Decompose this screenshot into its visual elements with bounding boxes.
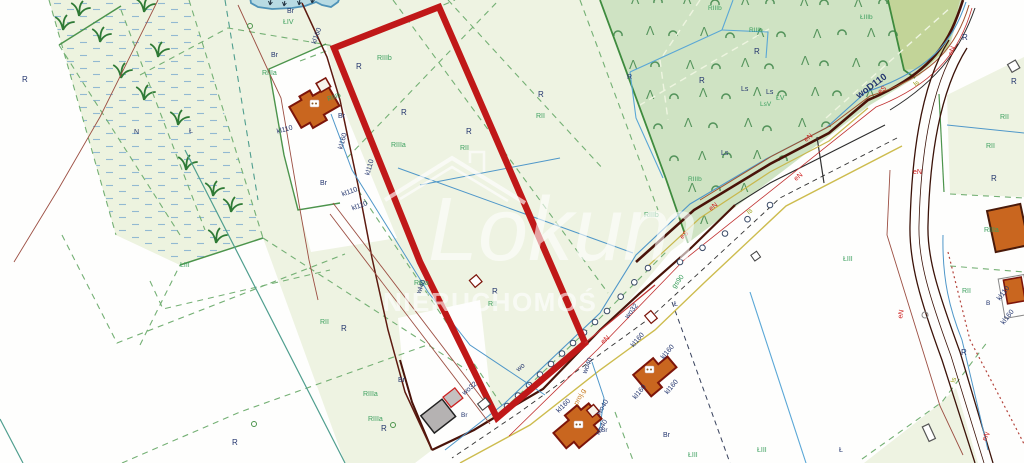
svg-text:R: R [22, 75, 28, 84]
svg-text:ŁIIIb: ŁIIIb [860, 14, 873, 21]
svg-text:NIERUCHOMOŚ: NIERUCHOMOŚ [383, 287, 597, 317]
svg-text:Λ: Λ [811, 85, 820, 99]
svg-text:R: R [356, 62, 362, 71]
svg-text:RIIIa: RIIIa [363, 391, 378, 398]
svg-text:Λ: Λ [813, 27, 822, 41]
svg-text:ŁIII: ŁIII [843, 256, 853, 263]
svg-text:RIIIa: RIIIa [368, 416, 383, 423]
svg-text:Λ: Λ [744, 116, 753, 130]
svg-text:B: B [986, 300, 990, 307]
svg-text:R: R [962, 33, 968, 42]
svg-text:Λ: Λ [753, 85, 762, 99]
svg-text:N: N [134, 129, 139, 136]
svg-text:Br: Br [338, 113, 346, 120]
svg-text:RIIIa: RIIIa [262, 70, 277, 77]
svg-text:R: R [961, 348, 967, 357]
svg-text:Λ: Λ [698, 149, 707, 163]
svg-text:RII: RII [320, 319, 329, 326]
svg-text:RII: RII [986, 143, 995, 150]
svg-text:R: R [991, 174, 997, 183]
svg-text:Ł: Ł [839, 447, 843, 454]
svg-text:Λ: Λ [646, 24, 655, 38]
svg-text:R: R [381, 424, 387, 433]
svg-text:ŁIII: ŁIII [688, 452, 698, 459]
svg-text:Λ: Λ [854, 0, 863, 10]
svg-text:Λ: Λ [801, 54, 810, 68]
svg-text:RIIIb: RIIIb [377, 55, 392, 62]
svg-text:R: R [401, 108, 407, 117]
svg-text:R: R [627, 74, 632, 81]
svg-text:R: R [699, 76, 705, 85]
svg-text:RIIIb: RIIIb [749, 27, 763, 34]
svg-text:LsV: LsV [760, 101, 772, 108]
svg-text:Λ: Λ [753, 148, 762, 162]
svg-text:Λ: Λ [741, 56, 750, 70]
svg-text:eN: eN [913, 169, 922, 176]
svg-text:Ls: Ls [766, 89, 774, 96]
svg-text:Br: Br [271, 52, 279, 59]
svg-text:Λ: Λ [646, 88, 655, 102]
svg-text:R: R [538, 90, 544, 99]
svg-text:RII: RII [460, 145, 469, 152]
svg-text:Λ: Λ [631, 0, 640, 7]
svg-text:Ls: Ls [741, 86, 749, 93]
svg-text:ŁIII: ŁIII [180, 262, 190, 269]
svg-text:R: R [232, 438, 238, 447]
svg-text:RIIIb: RIIIb [708, 5, 722, 12]
svg-text:Br: Br [398, 377, 406, 384]
svg-text:Br: Br [287, 8, 295, 15]
svg-text:Ł: Ł [189, 128, 193, 135]
svg-text:RII: RII [962, 288, 971, 295]
svg-text:Br: Br [461, 412, 468, 419]
svg-text:R: R [341, 324, 347, 333]
svg-text:Λ: Λ [683, 0, 692, 7]
svg-text:Lokum: Lokum [428, 180, 698, 280]
svg-text:ŁV: ŁV [776, 95, 785, 102]
svg-text:Λ: Λ [684, 116, 693, 130]
svg-text:R: R [466, 127, 472, 136]
svg-text:Λ: Λ [686, 58, 695, 72]
svg-text:ŁIV: ŁIV [283, 19, 294, 26]
svg-text:Ls: Ls [721, 150, 729, 157]
svg-text:RII: RII [1000, 114, 1009, 121]
svg-text:Λ: Λ [699, 86, 708, 100]
svg-text:RII: RII [536, 113, 545, 120]
svg-text:Λ: Λ [741, 0, 750, 8]
svg-text:Λ: Λ [867, 26, 876, 40]
svg-text:RIIIa: RIIIa [984, 227, 999, 234]
svg-text:Br: Br [320, 180, 328, 187]
svg-text:Λ: Λ [740, 181, 749, 195]
svg-text:ŁIII: ŁIII [757, 447, 767, 454]
svg-text:R: R [1011, 77, 1017, 86]
svg-text:Br: Br [663, 432, 671, 439]
svg-text:Λ: Λ [798, 116, 807, 130]
svg-text:Ł: Ł [674, 301, 678, 308]
svg-text:Λ: Λ [852, 56, 861, 70]
svg-text:R: R [754, 47, 760, 56]
svg-text:RIIIa: RIIIa [391, 142, 406, 149]
svg-text:Λ: Λ [800, 0, 809, 9]
